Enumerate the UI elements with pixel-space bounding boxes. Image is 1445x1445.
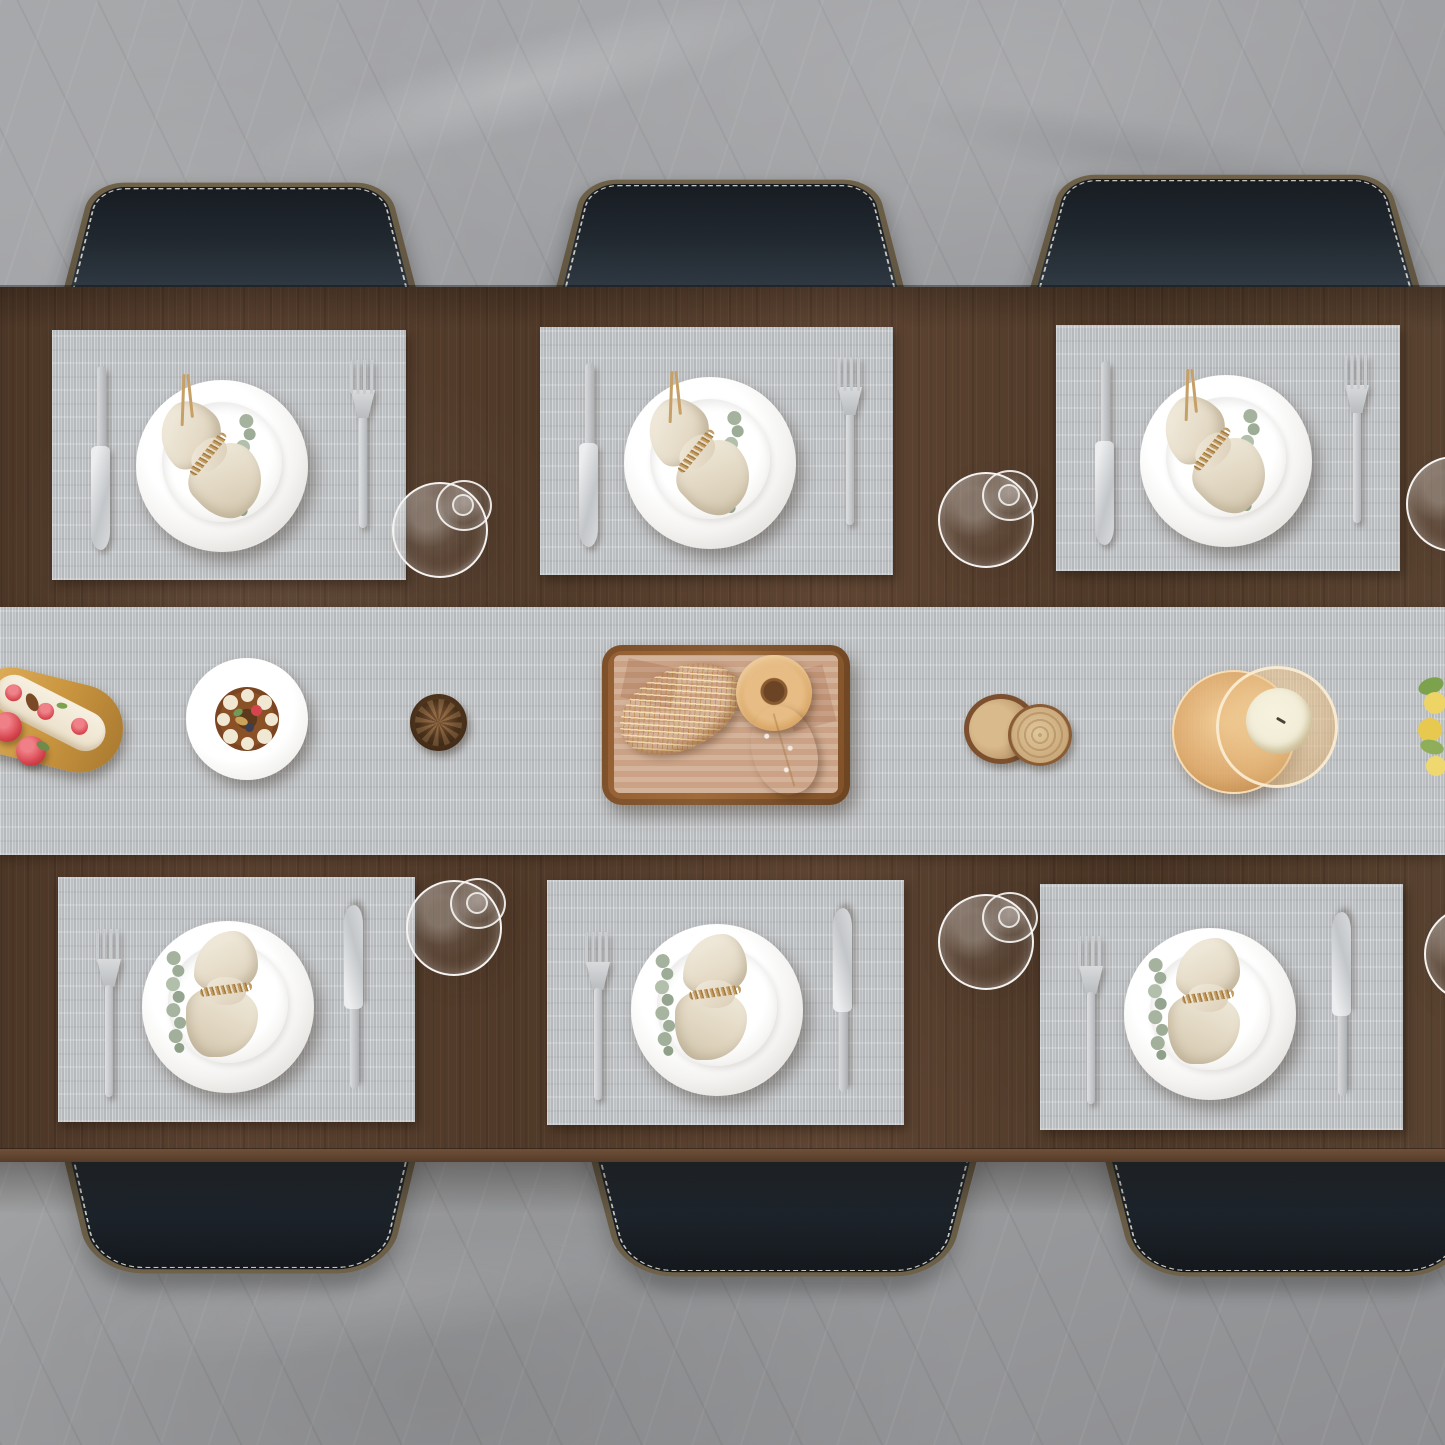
- fork-head: [97, 959, 121, 987]
- bread-tray: [602, 645, 850, 805]
- strawberry-topping: [251, 705, 262, 716]
- fork-head: [1345, 385, 1369, 413]
- wood-slice-decor: [964, 688, 1074, 768]
- flower-leaf: [1419, 737, 1445, 757]
- napkin: [178, 931, 274, 1059]
- fork-head: [351, 390, 375, 418]
- dinner-knife: [1094, 361, 1116, 545]
- fork-handle: [846, 413, 854, 525]
- dinner-plate: [142, 921, 314, 1093]
- wine-glass-4: [406, 880, 502, 976]
- napkin: [133, 379, 291, 538]
- fork-handle: [594, 988, 602, 1100]
- napkin: [1137, 374, 1295, 533]
- placemat-top-3: [1056, 325, 1400, 571]
- knife-blade: [833, 908, 852, 1012]
- dinner-knife: [90, 366, 112, 550]
- placemat-top-1: [52, 330, 406, 580]
- fork-handle: [359, 416, 367, 528]
- flower-bloom: [1426, 756, 1445, 776]
- fork-head: [586, 962, 610, 990]
- napkin: [621, 376, 779, 535]
- glass-stem: [466, 892, 488, 914]
- wine-glass-1: [392, 482, 488, 578]
- candle-centerpiece: [1172, 658, 1342, 788]
- mint-leaf: [56, 702, 68, 709]
- dinner-knife: [578, 363, 600, 547]
- strawberry-slice: [2, 681, 25, 704]
- flower-bloom: [1424, 692, 1445, 714]
- wine-glass-6: [1424, 906, 1445, 1002]
- dinner-knife: [832, 908, 854, 1092]
- dinner-plate: [136, 380, 308, 552]
- knife-handle: [839, 1006, 848, 1092]
- wine-glass-5: [938, 894, 1034, 990]
- placemat-top-2: [540, 327, 893, 575]
- wood-slice: [1008, 704, 1072, 766]
- knife-blade: [344, 905, 363, 1009]
- dinner-plate: [631, 924, 803, 1096]
- pine-cone: [410, 694, 467, 751]
- dinner-plate: [624, 377, 796, 549]
- dinner-fork: [837, 357, 863, 529]
- knife-blade: [91, 446, 110, 550]
- dinner-knife: [1331, 912, 1353, 1096]
- napkin: [1160, 938, 1256, 1066]
- dinner-fork: [350, 360, 376, 532]
- flower-bloom: [1418, 718, 1442, 742]
- fork-tines: [1344, 355, 1370, 389]
- napkin: [667, 934, 763, 1062]
- knife-handle: [1338, 1010, 1347, 1096]
- dinner-fork: [585, 932, 611, 1104]
- dinner-fork: [1078, 936, 1104, 1108]
- dinner-knife: [343, 905, 365, 1089]
- knife-blade: [1095, 441, 1114, 545]
- knife-handle: [350, 1003, 359, 1089]
- knife-blade: [1332, 912, 1351, 1016]
- dinner-plate: [1140, 375, 1312, 547]
- dining-table-scene: [0, 0, 1445, 1445]
- fork-handle: [1353, 411, 1361, 523]
- glass-stem: [452, 494, 474, 516]
- dinner-fork: [96, 929, 122, 1101]
- yellow-flowers: [1418, 678, 1445, 788]
- fork-head: [1079, 966, 1103, 994]
- knife-handle: [585, 363, 594, 449]
- knife-handle: [1101, 361, 1110, 447]
- candle: [1246, 688, 1312, 754]
- dining-table: [0, 287, 1445, 1162]
- candle-wick: [1276, 717, 1286, 725]
- placemat-bottom-1: [58, 877, 415, 1122]
- fork-head: [838, 387, 862, 415]
- dinner-fork: [1344, 355, 1370, 527]
- table-edge: [0, 1149, 1445, 1162]
- wine-glass-2: [938, 472, 1034, 568]
- fork-handle: [1087, 992, 1095, 1104]
- dessert-plate: [186, 658, 308, 780]
- glass-stem: [998, 484, 1020, 506]
- fork-tines: [96, 929, 122, 963]
- fork-tines: [585, 932, 611, 966]
- knife-blade: [579, 443, 598, 547]
- fork-handle: [105, 985, 113, 1097]
- glass-stem: [998, 906, 1020, 928]
- glass-bowl: [1424, 906, 1445, 1002]
- placemat-bottom-3: [1040, 884, 1403, 1130]
- dinner-plate: [1124, 928, 1296, 1100]
- placemat-bottom-2: [547, 880, 904, 1125]
- chocolate-tart: [215, 687, 279, 751]
- wine-glass-3: [1406, 456, 1445, 552]
- fork-tines: [350, 360, 376, 394]
- fork-tines: [1078, 936, 1104, 970]
- glass-bowl: [1406, 456, 1445, 552]
- strawberry-slice: [68, 715, 91, 738]
- fork-tines: [837, 357, 863, 391]
- knife-handle: [97, 366, 106, 452]
